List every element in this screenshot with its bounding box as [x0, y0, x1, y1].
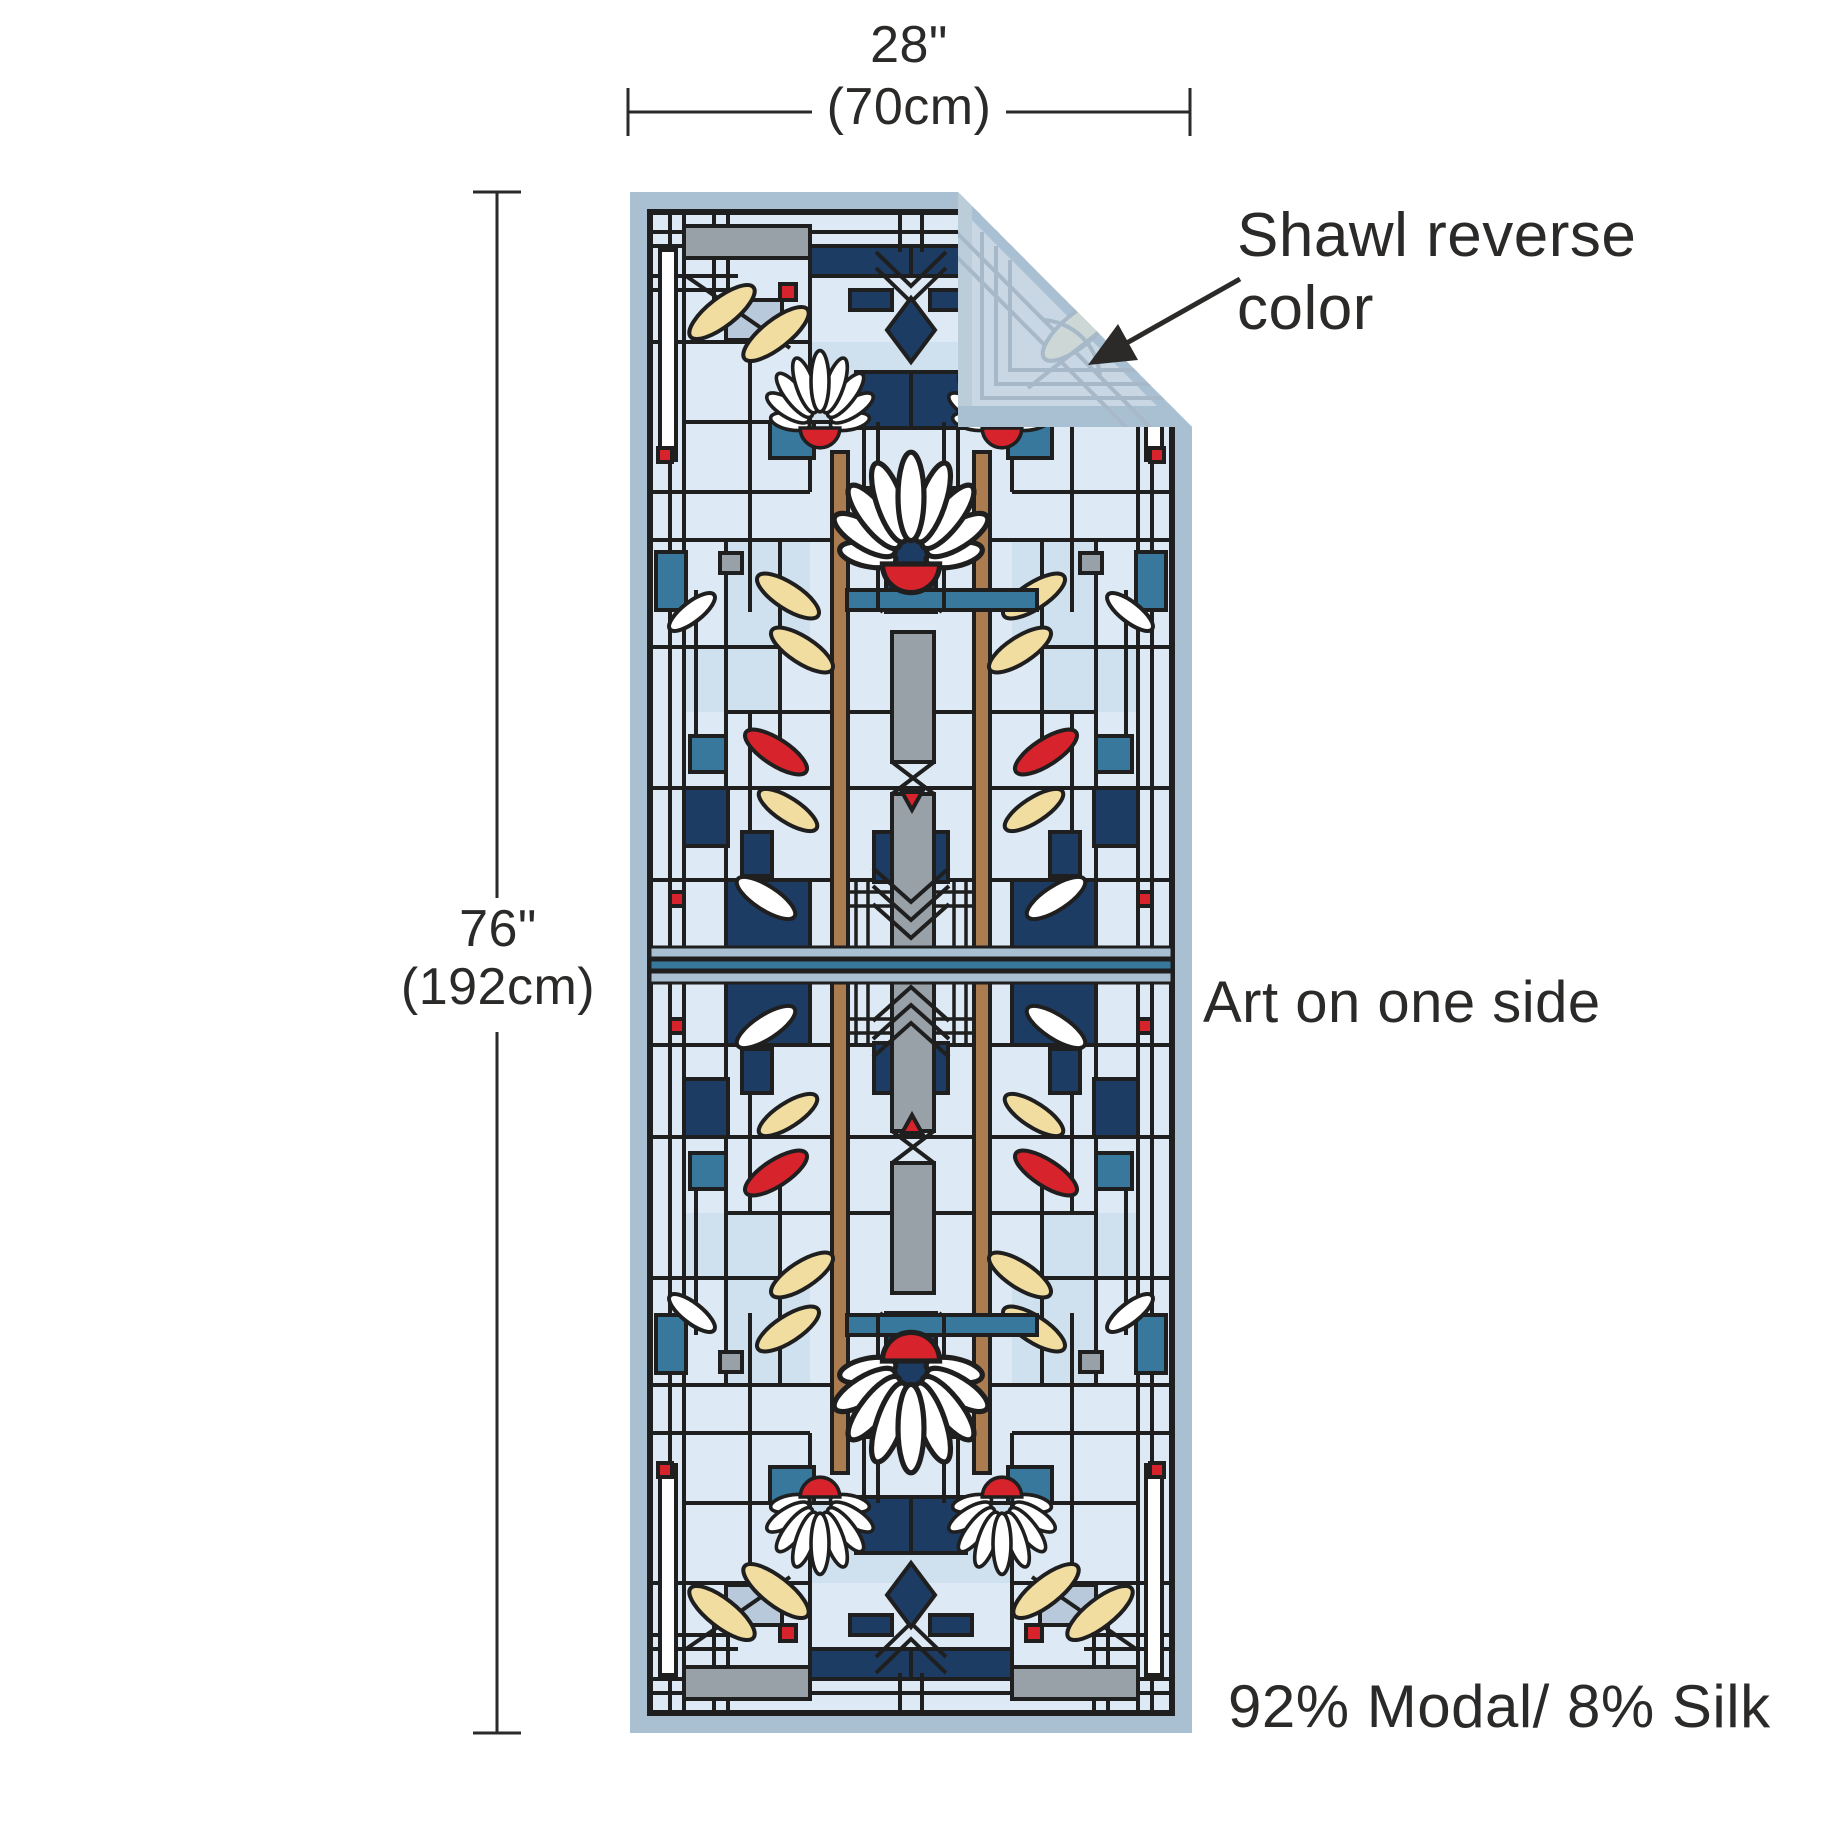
mid-divider — [650, 947, 1172, 983]
material-annotation: 92% Modal/ 8% Silk — [1228, 1672, 1771, 1741]
height-dimension-inches: 76" — [388, 900, 608, 960]
width-dimension-cm: (70cm) — [628, 78, 1190, 138]
pattern-bottom-half — [630, 962, 1192, 1733]
reverse-color-annotation: Shawl reverse color — [1237, 200, 1636, 345]
width-dimension-inches: 28" — [628, 16, 1190, 76]
height-dimension-cm: (192cm) — [388, 958, 608, 1018]
reverse-color-annotation-line2: color — [1237, 273, 1636, 346]
art-side-annotation: Art on one side — [1203, 970, 1601, 1037]
diagram-canvas: 28" (70cm) 76" (192cm) Shawl reverse col… — [0, 0, 1825, 1825]
shawl-illustration — [630, 192, 1192, 1733]
reverse-color-annotation-line1: Shawl reverse — [1237, 200, 1636, 273]
